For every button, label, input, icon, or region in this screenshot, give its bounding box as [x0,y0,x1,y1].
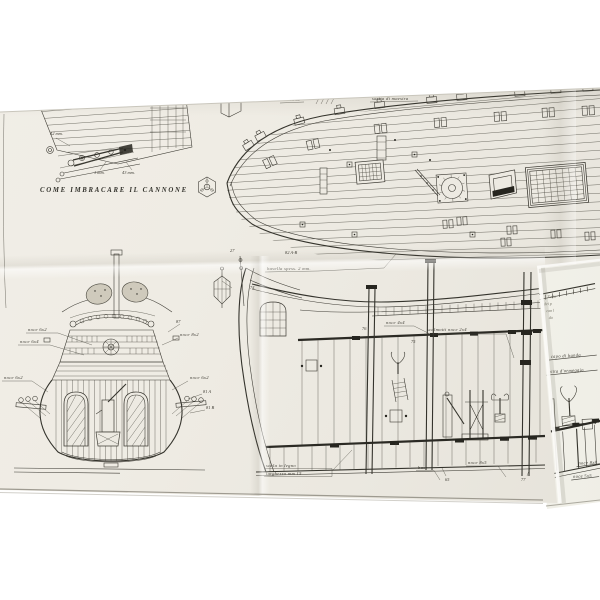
leader-noce-8x5 [466,466,506,477]
hatch-grating-large [525,162,588,207]
label-76: 76 [362,326,367,331]
leader-87 [168,324,180,332]
label-noce-6x2-b: noce 6x2 [4,375,23,380]
photo-frame: Tutta dei p con l da capo di banda bitta… [0,0,600,600]
hatch-grating-small [355,160,385,184]
label-81b: 81 B [206,405,214,410]
leader-81b [190,410,205,413]
section-bitt [462,390,488,440]
label-capo-di-banda: capo di banda [551,352,582,359]
companion-hood [489,170,517,199]
capstan-drawing [436,173,468,203]
leader-noce-6x4 [18,345,84,355]
panel-note-line-4: da [549,315,553,320]
label-noce-6x4: noce 6x4 [20,339,39,344]
cannon-caption: COME IMBRACARE IL CANNONE [40,187,188,194]
hull-section-drawing: noce 4x4 scalmotti noce 2x4 76 75 scala … [239,259,545,482]
label-scalmotti: scalmotti noce 2x4 [427,327,467,332]
label-noce-4x4: noce 4x4 [386,320,405,325]
label-noce-6x2-c: noce 6x2 [190,375,209,380]
section-floor-frames [270,438,536,472]
label-dim-1mm: 1 mm. [94,170,105,175]
leader-noce-6x2-b [2,381,48,392]
label-sartia-di-maestra: sartia di maestra [372,96,409,101]
label-77: 77 [521,477,526,482]
label-87: 87 [176,319,181,324]
plan-sheet-drawing: 42 mm. 1 mm. 43 mm. COME IMBRACARE IL CA… [0,0,600,600]
label-base: base [418,465,428,470]
panel-note-line-3: con l [546,308,555,313]
panel-note-line-2: dei p [544,301,552,306]
stern-lantern-drawing: 74 [214,256,255,308]
paper-left-edge [3,114,6,308]
label-81a: 81 A [203,389,211,394]
block-detail-drawing [221,91,241,117]
label-bavella: bavella spess. 2 mm. [267,266,311,271]
leader-noce-4x4 [384,326,430,334]
tally-marks [316,94,336,104]
label-82ab: 82 A-B [285,250,298,255]
panel-note-line-1: Tutta [547,294,555,299]
label-noce-8x5: noce 8x5 [468,460,487,465]
label-27: 27 [230,248,235,253]
underline-mezzana [280,102,304,103]
plan-sheet: 42 mm. 1 mm. 43 mm. COME IMBRACARE IL CA… [0,0,600,600]
cannon-detail-drawing: 42 mm. 1 mm. 43 mm. COME IMBRACARE IL CA… [36,92,194,194]
label-scala-in-legno: scala in legno [266,463,296,468]
label-noce-8x8: noce 8x8 [578,460,597,466]
label-dim-42mm: 42 mm. [50,131,63,136]
leader-scalmotti [424,334,514,358]
label-noce-8x2: noce 8x2 [180,332,199,337]
taffrail-scrolls [70,314,154,327]
label-noce-6x2-a: noce 6x2 [28,327,47,332]
stern-tops [62,280,172,318]
stern-balusters [70,336,154,355]
leader-base [416,471,440,481]
label-mezzana: mezzana [282,97,300,102]
section-ladder [392,378,408,402]
deadeye-detail-drawing [198,177,215,197]
leader-noce-8x2 [162,338,178,345]
deck-plan-drawing: mezzana sartia di maestra 82 A-B 27 bave… [222,82,600,272]
label-dim-43mm: 43 mm. [122,170,135,175]
label-larghezza: larghezza mm 15 [266,471,302,476]
stern-view-drawing: noce 6x2 noce 6x4 noce 6x2 87 noce 8x2 n… [2,250,214,473]
label-75: 75 [411,339,416,344]
section-frames [302,331,540,445]
label-65: 65 [445,477,450,482]
leader-65 [442,468,446,476]
panel-deck-structure [546,418,600,478]
